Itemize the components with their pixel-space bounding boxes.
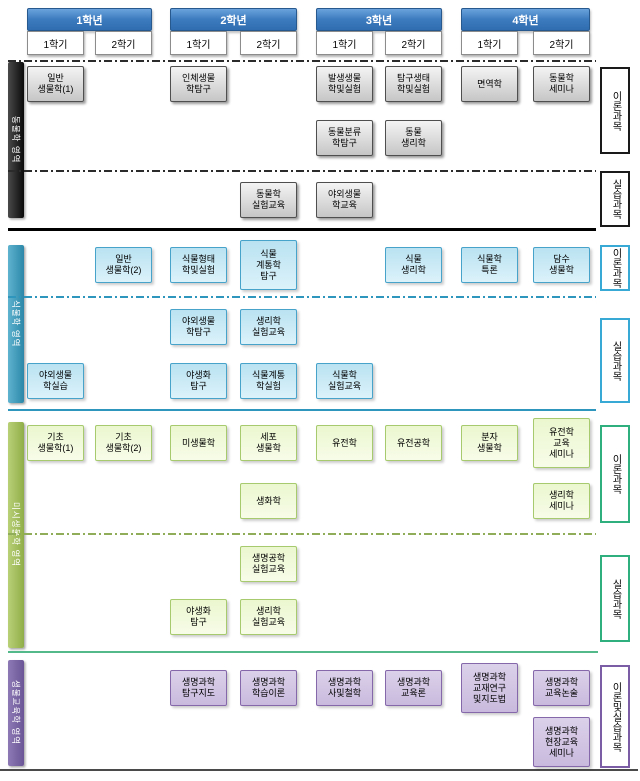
course-box: 탐구생태 학및실험	[385, 66, 442, 102]
course-box: 기초 생물학(1)	[27, 425, 84, 461]
course-box: 야생화 탐구	[170, 599, 227, 635]
course-type-label: 실습과목	[600, 171, 630, 227]
area-bar-zoology-area-text: 동물학 영역	[10, 116, 22, 163]
course-box: 유전학	[316, 425, 373, 461]
divider-solid	[8, 409, 596, 411]
course-type-label-text: 이론과목	[610, 454, 620, 494]
course-box: 생명과학 교육론	[385, 670, 442, 706]
divider-dashed	[8, 296, 596, 298]
course-type-label: 이론과목	[600, 425, 630, 523]
area-bar-botany-area-text: 식물학 영역	[10, 300, 22, 347]
course-box: 식물형태 학및실험	[170, 247, 227, 283]
course-box: 생명과학 교재연구 및지도법	[461, 663, 518, 713]
course-box: 일반 생물학(1)	[27, 66, 84, 102]
area-bar-botany-area: 식물학 영역	[8, 245, 24, 403]
course-box: 생명공학 실험교육	[240, 546, 297, 582]
curriculum-diagram: 1학년1학기2학기2학년1학기2학기3학년1학기2학기4학년1학기2학기동물학 …	[0, 0, 640, 781]
course-box: 동물 생리학	[385, 120, 442, 156]
course-box: 야외생물 학실습	[27, 363, 84, 399]
course-box: 생리학 실험교육	[240, 599, 297, 635]
course-box: 생화학	[240, 483, 297, 519]
course-box: 야생화 탐구	[170, 363, 227, 399]
course-type-label-text: 실습과목	[610, 341, 620, 381]
course-box: 일반 생물학(2)	[95, 247, 152, 283]
year-header: 1학년	[27, 8, 152, 31]
course-box: 식물 계통학 탐구	[240, 240, 297, 290]
course-type-label-text: 이론과목	[610, 91, 620, 131]
semester-header: 1학기	[27, 31, 84, 55]
course-box: 생리학 실험교육	[240, 309, 297, 345]
course-box: 면역학	[461, 66, 518, 102]
course-type-label: 실습과목	[600, 318, 630, 403]
semester-header: 2학기	[240, 31, 297, 55]
course-box: 미생물학	[170, 425, 227, 461]
course-box: 야외생물 학교육	[316, 182, 373, 218]
course-box: 기초 생물학(2)	[95, 425, 152, 461]
course-type-label-text: 이론과목	[610, 248, 620, 288]
course-type-label-text: 실습과목	[610, 579, 620, 619]
course-box: 발생생물 학및실험	[316, 66, 373, 102]
course-box: 생명과학 학습이론	[240, 670, 297, 706]
semester-header: 1학기	[316, 31, 373, 55]
area-bar-biology-education-area-text: 생물교육학 영역	[10, 680, 22, 745]
course-box: 인체생물 학탐구	[170, 66, 227, 102]
year-header: 3학년	[316, 8, 442, 31]
course-box: 동물학 실험교육	[240, 182, 297, 218]
divider-solid	[8, 651, 598, 653]
year-header: 4학년	[461, 8, 590, 31]
course-box: 세포 생물학	[240, 425, 297, 461]
course-box: 생명과학 사및철학	[316, 670, 373, 706]
course-box: 동물학 세미나	[533, 66, 590, 102]
course-box: 동물분류 학탐구	[316, 120, 373, 156]
course-box: 야외생물 학탐구	[170, 309, 227, 345]
course-box: 생명과학 현장교육 세미나	[533, 717, 590, 767]
course-type-label-text: 이론및실습과목	[610, 682, 620, 752]
course-box: 담수 생물학	[533, 247, 590, 283]
course-box: 생리학 세미나	[533, 483, 590, 519]
area-bar-zoology-area: 동물학 영역	[8, 62, 24, 218]
course-box: 식물학 특론	[461, 247, 518, 283]
area-bar-microbiology-area: 미시생물학 영역	[8, 422, 24, 648]
semester-header: 2학기	[533, 31, 590, 55]
course-box: 식물 생리학	[385, 247, 442, 283]
course-type-label: 이론과목	[600, 245, 630, 291]
course-type-label: 이론과목	[600, 67, 630, 154]
course-box: 분자 생물학	[461, 425, 518, 461]
course-box: 식물학 실험교육	[316, 363, 373, 399]
area-bar-biology-education-area: 생물교육학 영역	[8, 660, 24, 766]
divider-solid	[0, 769, 638, 771]
course-box: 유전공학	[385, 425, 442, 461]
course-box: 생명과학 교육논술	[533, 670, 590, 706]
course-type-label: 이론및실습과목	[600, 665, 630, 768]
divider-solid	[8, 228, 596, 231]
course-type-label-text: 실습과목	[610, 179, 620, 219]
semester-header: 2학기	[95, 31, 152, 55]
course-box: 식물계통 학실험	[240, 363, 297, 399]
course-box: 생명과학 탐구지도	[170, 670, 227, 706]
semester-header: 1학기	[461, 31, 518, 55]
semester-header: 2학기	[385, 31, 442, 55]
divider-dashed	[8, 60, 596, 62]
divider-dashed	[8, 533, 596, 535]
course-type-label: 실습과목	[600, 555, 630, 642]
divider-dashed	[8, 170, 596, 172]
year-header: 2학년	[170, 8, 297, 31]
course-box: 유전학 교육 세미나	[533, 418, 590, 468]
semester-header: 1학기	[170, 31, 227, 55]
